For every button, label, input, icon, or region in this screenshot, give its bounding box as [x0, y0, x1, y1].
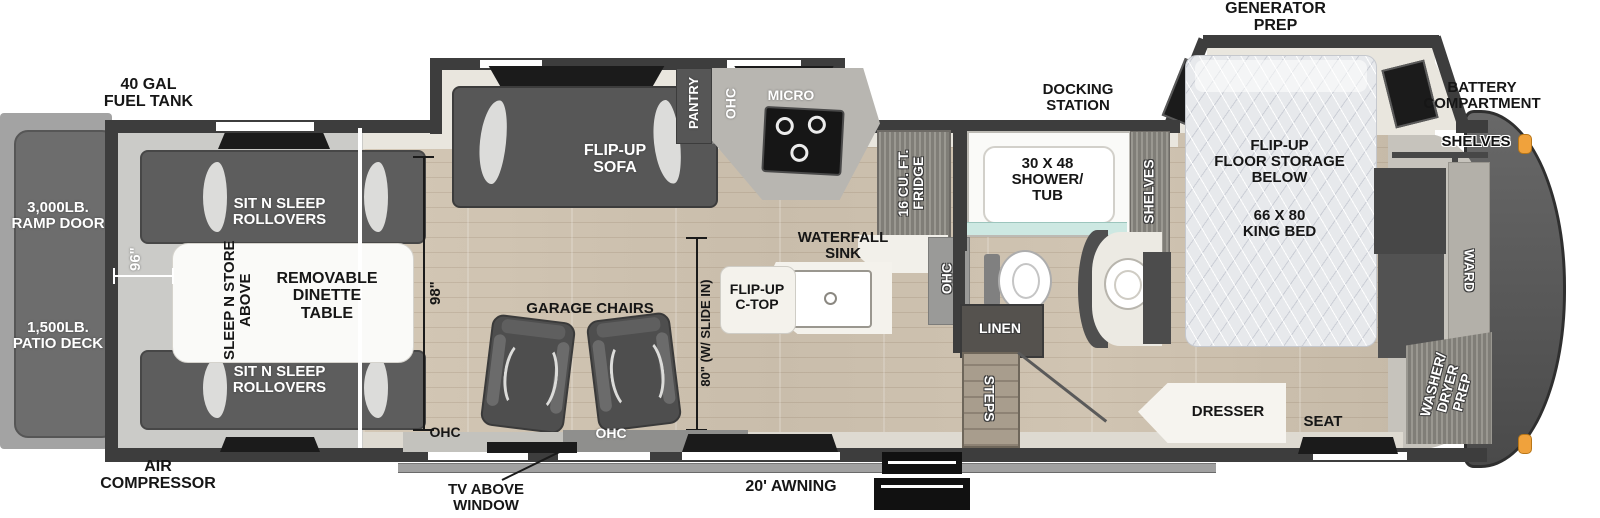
floorplan-diagram: 40 GAL FUEL TANK GENERATOR PREP DOCKING … [0, 0, 1600, 518]
garage-chair-right [585, 311, 682, 432]
seat-label: SEAT [1293, 414, 1353, 430]
bed-divider-cabinet [1143, 252, 1171, 344]
docking-station-label: DOCKING STATION [1018, 82, 1138, 114]
sit-n-sleep-top-label: SIT N SLEEP ROLLOVERS [212, 196, 347, 228]
dim-80-label: 80" (W/ SLIDE IN) [699, 253, 713, 413]
flip-up-sofa-label: FLIP-UP SOFA [555, 142, 675, 177]
bottom-window-gap-2 [558, 452, 650, 460]
bed-pillow-zone [1195, 60, 1367, 92]
nightstand-top [1374, 168, 1446, 254]
air-compressor-label: AIR COMPRESSOR [88, 458, 228, 493]
step-tread-line [888, 461, 956, 464]
burner [775, 117, 794, 136]
dim-80-tick-top [686, 237, 707, 239]
garage-top-window-gap [216, 122, 314, 131]
dim-98-line [423, 157, 425, 431]
ramp-door-label: 3,000LB. RAMP DOOR [4, 200, 112, 232]
bath-ohc-label: OHC [939, 257, 954, 301]
pantry-label: PANTRY [687, 68, 701, 138]
burner [807, 115, 826, 134]
patio-deck-label: 1,500LB. PATIO DECK [4, 320, 112, 352]
dim-96-label: 96" [128, 242, 144, 276]
awning-label: 20' AWNING [736, 478, 846, 495]
garage-bottom-window [220, 437, 320, 452]
tv-bar [487, 442, 577, 453]
bottom-ohc-label-right: OHC [590, 426, 632, 441]
left-wall [105, 120, 118, 461]
steps-label: STEPS [981, 371, 996, 427]
entry-step-top [882, 452, 962, 474]
bath-shelves-label: SHELVES [1141, 154, 1156, 230]
tv-above-window-label: TV ABOVE WINDOW [436, 482, 536, 514]
garage-chair-left [479, 313, 576, 434]
toilet [984, 250, 1048, 310]
linen-label: LINEN [968, 321, 1032, 336]
bedroom-bottom-window [1298, 437, 1398, 454]
toilet-bowl-inner [1012, 263, 1040, 299]
chair-headrest [501, 318, 566, 340]
chair-headrest [596, 316, 661, 338]
sit-n-sleep-bottom-label: SIT N SLEEP ROLLOVERS [212, 364, 347, 396]
dim-96-tick-right [172, 268, 174, 284]
bath-sink-inner [1114, 270, 1142, 300]
fuel-tank-label: 40 GAL FUEL TANK [86, 76, 211, 111]
burner [790, 143, 809, 162]
kitchen-ohc-label: OHC [723, 82, 738, 126]
flip-up-floor-storage-label: FLIP-UP FLOOR STORAGE BELOW [1202, 138, 1357, 187]
dresser-label: DRESSER [1178, 404, 1278, 420]
garage-chairs-label: GARAGE CHAIRS [520, 301, 660, 317]
bath-left-wall [953, 131, 967, 251]
micro-label: MICRO [758, 88, 824, 103]
king-bed-label: 66 X 80 KING BED [1222, 208, 1337, 240]
king-bed [1185, 55, 1377, 347]
sofa-cushion [364, 162, 388, 232]
sleep-n-store-label: SLEEP N STORE ABOVE [222, 235, 254, 365]
bottom-window-gap-3 [682, 452, 840, 460]
bed-slide-top-wall [1203, 35, 1439, 48]
dim-98-label: 98" [428, 276, 444, 310]
step-tread-line [881, 485, 963, 488]
fridge-label: 16 CU. FT. FRIDGE [896, 143, 926, 223]
removable-dinette-label: REMOVABLE DINETTE TABLE [262, 270, 392, 322]
bottom-window-gap-1 [428, 452, 528, 460]
sink-drain [824, 292, 837, 305]
front-shelf-line-h [1392, 152, 1488, 158]
dim-98-tick-top [413, 156, 434, 158]
generator-prep-label: GENERATOR PREP [1213, 0, 1338, 35]
living-bottom-window [682, 434, 838, 452]
flip-up-ctop-label: FLIP-UP C-TOP [722, 282, 792, 312]
shower-tub-label: 30 X 48 SHOWER/ TUB [995, 156, 1100, 205]
garage-top-window [218, 133, 330, 149]
entry-step-bottom [874, 478, 970, 510]
bottom-ohc-label-left: OHC [424, 425, 466, 440]
battery-compartment-label: BATTERY COMPARTMENT [1412, 80, 1552, 112]
ramp-panel [14, 130, 116, 438]
marker-light-bottom [1518, 434, 1532, 454]
waterfall-sink-label: WATERFALL SINK [788, 230, 898, 262]
stove [761, 106, 844, 176]
top-wall-front [1456, 120, 1488, 133]
sofa-cushion [364, 358, 388, 418]
marker-light-top [1518, 134, 1532, 154]
dim-96-tick-left [113, 268, 115, 284]
ward-label: WARD [1461, 246, 1476, 296]
front-shelves-label: SHELVES [1436, 134, 1516, 150]
